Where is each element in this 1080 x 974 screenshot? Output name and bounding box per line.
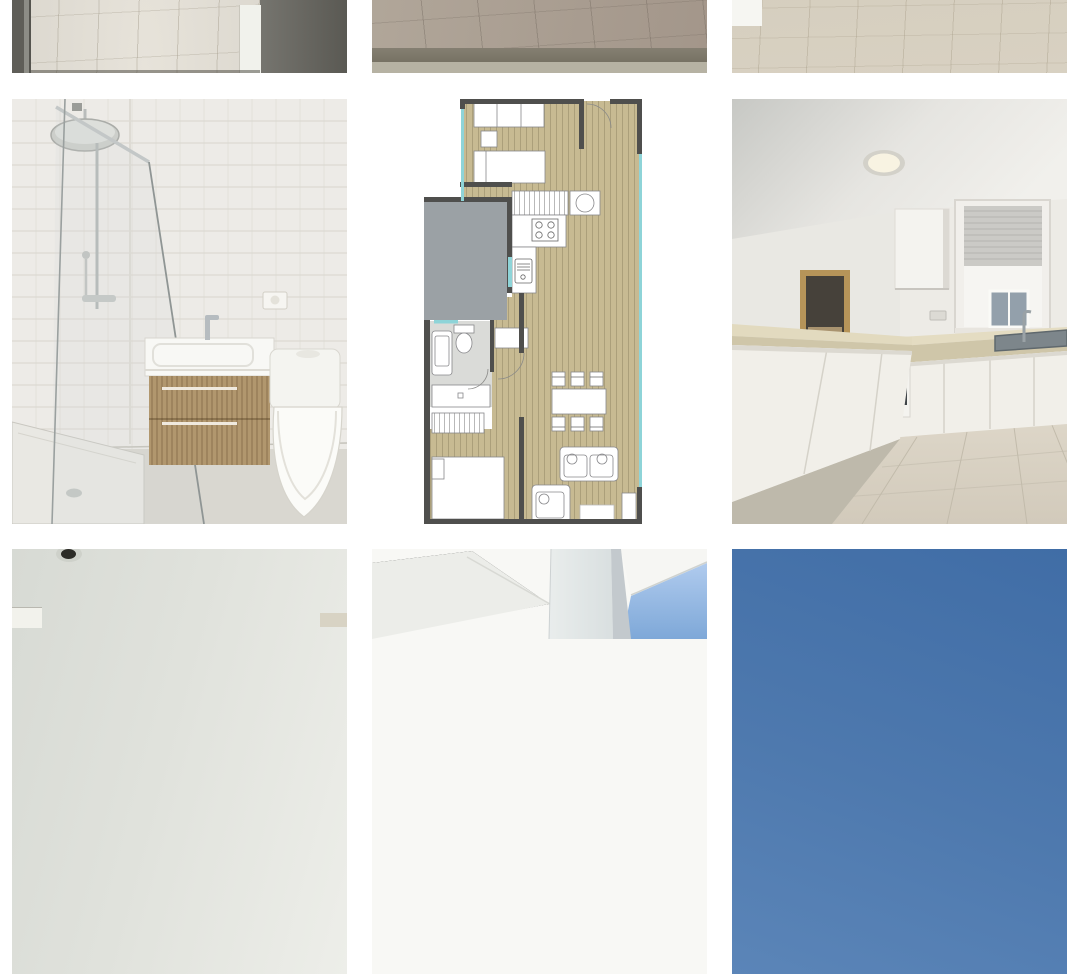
photo-gallery <box>0 0 1080 623</box>
plan-closet <box>432 413 484 433</box>
ceiling-spotlight <box>863 150 905 176</box>
terrace-scene <box>372 549 707 639</box>
plan-nightstand <box>481 131 497 147</box>
drawer-handle-top <box>162 387 237 390</box>
gallery-photo-bathroom[interactable] <box>12 99 347 524</box>
plan-vanity <box>432 385 490 407</box>
white-cabinet-top <box>12 607 42 628</box>
floor-plan-drawing <box>424 99 654 524</box>
vanity-wood-drawers <box>149 376 270 465</box>
terrace-pillar <box>549 549 631 639</box>
plan-armchair <box>532 485 570 523</box>
gallery-photo-wood-floor[interactable] <box>372 0 707 73</box>
wall-socket <box>263 292 287 309</box>
beige-corner <box>320 613 347 627</box>
gallery-photo-hallway[interactable] <box>12 0 347 73</box>
dark-baseboard-band <box>372 48 707 62</box>
plan-bed-bottom <box>432 457 504 519</box>
white-wall-corner <box>732 0 762 26</box>
gallery-photo-kitchen[interactable] <box>732 99 1067 524</box>
counter-socket <box>930 311 946 320</box>
plan-wardrobe-top <box>474 101 544 127</box>
gallery-photo-light-floor[interactable] <box>732 0 1067 73</box>
plan-sofa <box>560 447 618 481</box>
wood-planks <box>732 0 1067 73</box>
hallway-floor <box>31 0 260 73</box>
gallery-photo-sky[interactable] <box>732 549 1067 974</box>
plan-bed-top <box>474 151 545 183</box>
spotlight-hole <box>61 549 76 559</box>
doorway <box>800 270 850 338</box>
light-bottom-strip <box>372 62 707 73</box>
plan-adjacent-block <box>424 202 507 320</box>
kitchen-scene <box>732 99 1067 524</box>
roller-blind <box>964 206 1042 266</box>
plan-dining-set <box>552 372 606 431</box>
left-door-frame <box>12 0 24 73</box>
bathroom-scene <box>12 99 347 524</box>
white-door-bottom <box>239 5 261 73</box>
faucet <box>205 318 210 340</box>
gallery-photo-ceiling[interactable] <box>12 549 347 974</box>
upper-cabinet <box>895 209 949 289</box>
plan-tv-unit <box>622 493 636 523</box>
gallery-photo-floor-plan[interactable] <box>372 99 707 524</box>
toilet-tank <box>270 349 340 409</box>
gallery-photo-terrace[interactable] <box>372 549 707 974</box>
kitchen-window <box>955 200 1050 334</box>
left-frame-edge <box>29 0 31 73</box>
vanity-unit <box>145 315 274 465</box>
right-door-frame <box>260 0 347 73</box>
drawer-handle-bottom <box>162 422 237 425</box>
flush-button <box>296 350 320 358</box>
floor-shadow <box>31 70 260 73</box>
